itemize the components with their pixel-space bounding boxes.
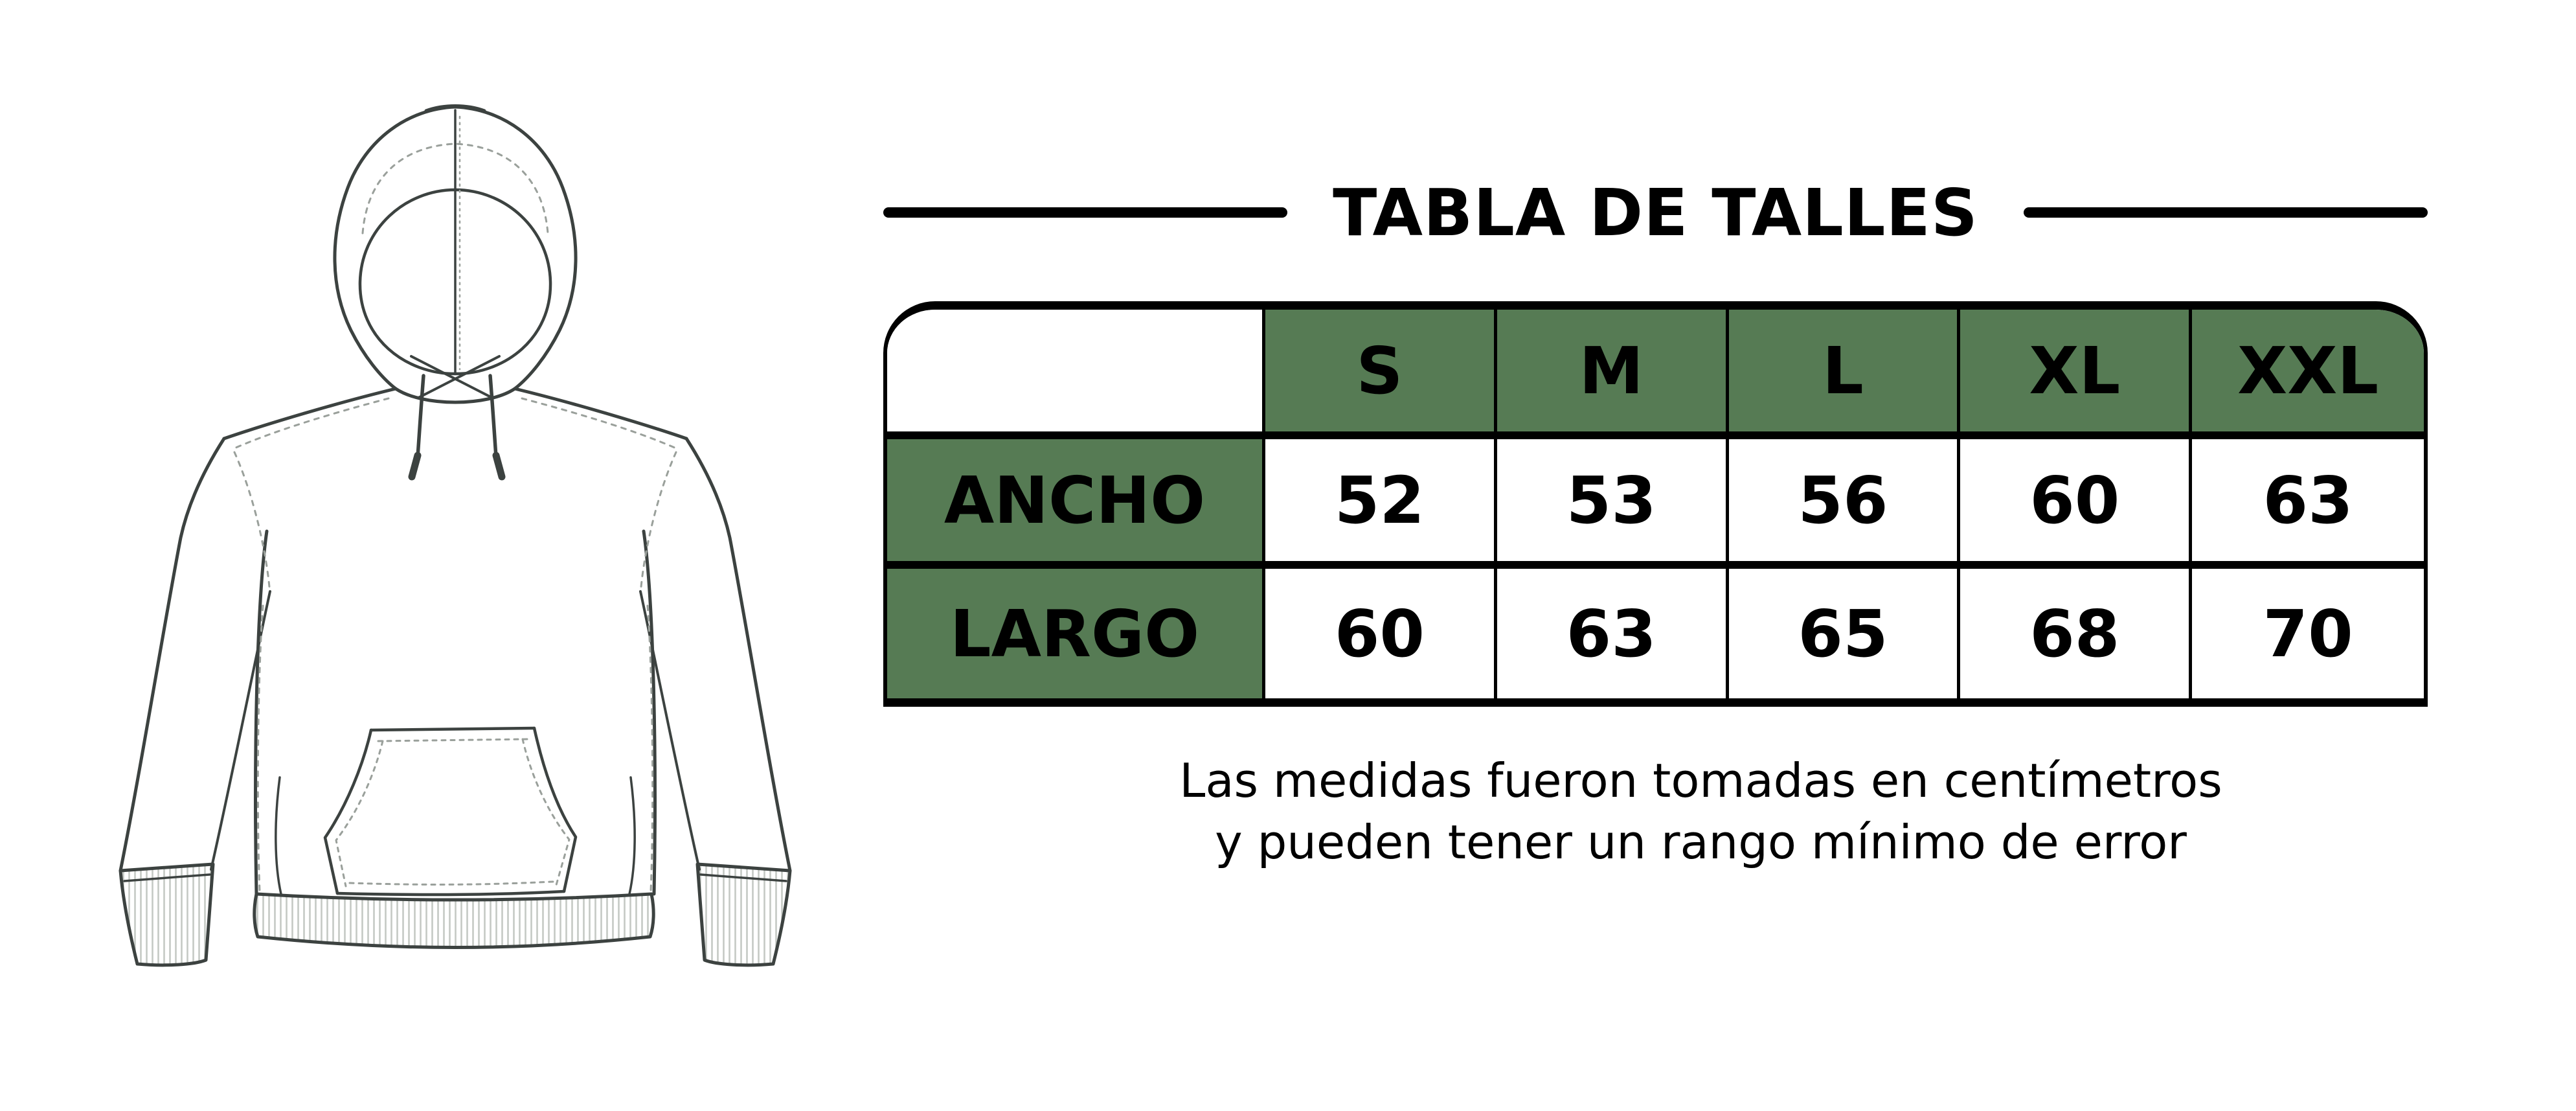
largo-value-xl: 68 — [1960, 569, 2192, 698]
size-col-header-s: S — [1265, 310, 1497, 439]
size-col-header-l: L — [1729, 310, 1961, 439]
footnote-line-1: Las medidas fueron tomadas en centímetro… — [929, 750, 2473, 812]
size-col-header-xl: XL — [1960, 310, 2192, 439]
hoodie-illustration — [39, 19, 881, 978]
measure-label-largo: LARGO — [887, 569, 1265, 698]
corner-cell — [887, 310, 1265, 439]
largo-value-s: 60 — [1265, 569, 1497, 698]
largo-value-l: 65 — [1729, 569, 1961, 698]
size-table: S M L XL XXL ANCHO 52 53 56 60 63 LARGO … — [883, 301, 2428, 707]
size-col-header-xxl: XXL — [2192, 310, 2424, 439]
largo-value-m: 63 — [1497, 569, 1729, 698]
ancho-value-xl: 60 — [1960, 439, 2192, 569]
measure-label-ancho: ANCHO — [887, 439, 1265, 569]
title-left-rule — [883, 207, 1287, 218]
ancho-value-m: 53 — [1497, 439, 1729, 569]
footnote-line-2: y pueden tener un rango mínimo de error — [929, 812, 2473, 873]
size-col-header-m: M — [1497, 310, 1729, 439]
ancho-value-s: 52 — [1265, 439, 1497, 569]
page-title: TABLA DE TALLES — [1333, 175, 1978, 251]
footnote: Las medidas fueron tomadas en centímetro… — [929, 750, 2473, 873]
largo-value-xxl: 70 — [2192, 569, 2424, 698]
size-chart-page: TABLA DE TALLES S M L XL XXL ANCHO 52 53… — [0, 0, 2576, 1111]
title-row: TABLA DE TALLES — [883, 170, 2428, 255]
title-right-rule — [2024, 207, 2428, 218]
ancho-value-l: 56 — [1729, 439, 1961, 569]
ancho-value-xxl: 63 — [2192, 439, 2424, 569]
